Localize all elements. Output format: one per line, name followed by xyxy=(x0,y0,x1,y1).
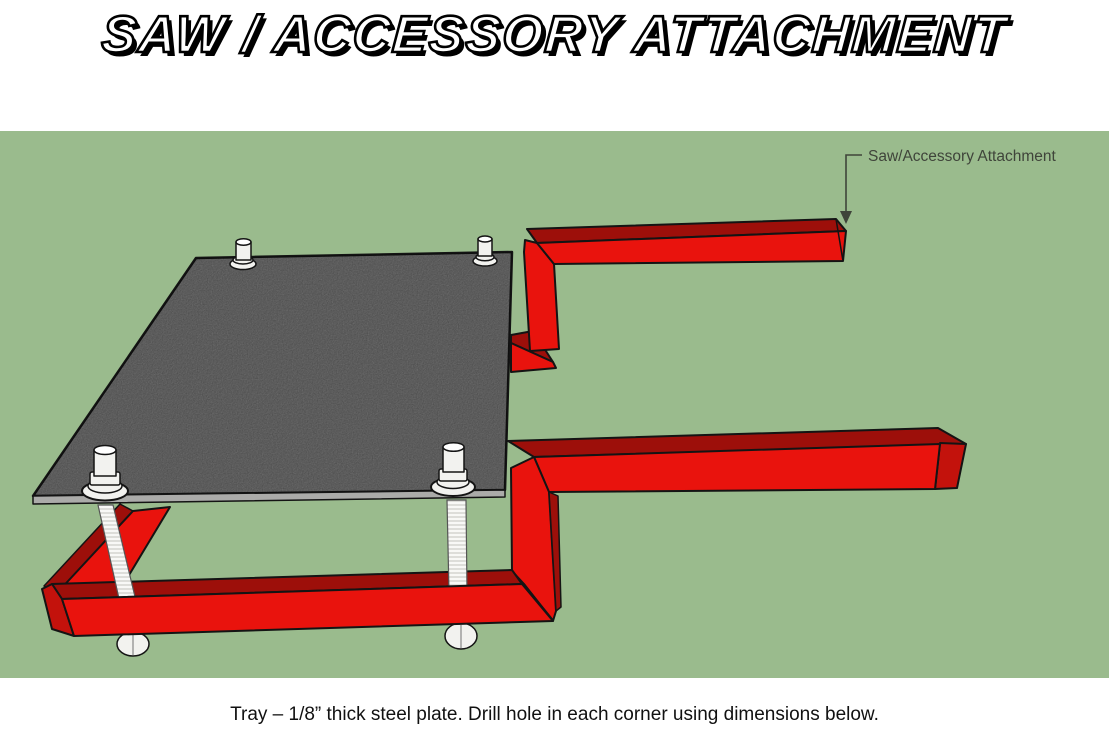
page: SAW / ACCESSORY ATTACHMENT xyxy=(0,0,1109,743)
scene-label: Saw/Accessory Attachment xyxy=(868,148,1056,165)
caption: Tray – 1/8” thick steel plate. Drill hol… xyxy=(0,704,1109,726)
sketchup-render: Saw/Accessory Attachment xyxy=(0,131,1109,678)
page-title: SAW / ACCESSORY ATTACHMENT xyxy=(0,2,1109,68)
rod-front-right xyxy=(447,500,467,593)
scene-image: Saw/Accessory Attachment xyxy=(0,131,1109,678)
